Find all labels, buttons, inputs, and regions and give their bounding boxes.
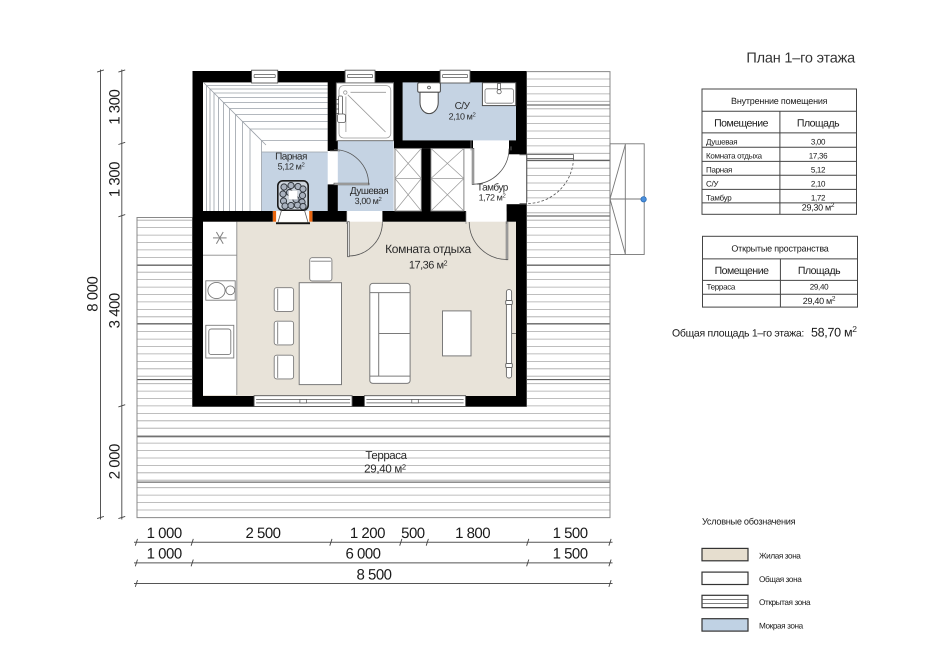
svg-text:3 400: 3 400 [107,293,124,328]
svg-text:1 300: 1 300 [107,162,124,197]
svg-text:5,12: 5,12 [811,166,826,175]
svg-text:17,36: 17,36 [809,152,828,161]
svg-text:8 500: 8 500 [356,567,391,584]
svg-text:Площадь: Площадь [797,118,840,130]
svg-text:Жилая зона: Жилая зона [759,551,801,560]
svg-text:Комната отдыха: Комната отдыха [706,152,763,161]
svg-text:Терраса: Терраса [365,450,407,462]
svg-text:Открытая зона: Открытая зона [759,598,811,607]
svg-text:Мокрая зона: Мокрая зона [759,622,804,631]
svg-text:1 000: 1 000 [147,546,182,563]
svg-text:3,00: 3,00 [811,138,826,147]
svg-text:Внутренние помещения: Внутренние помещения [731,96,828,106]
svg-text:Общая площадь 1–го этажа:58,70: Общая площадь 1–го этажа:58,70 м2 [672,324,857,340]
svg-text:Тамбур: Тамбур [706,194,732,203]
svg-text:Душевая: Душевая [706,138,737,147]
svg-text:2 000: 2 000 [107,444,124,479]
svg-text:2 500: 2 500 [245,525,280,542]
svg-text:Помещение: Помещение [714,118,768,130]
svg-text:500: 500 [401,525,425,542]
svg-text:Терраса: Терраса [707,282,736,291]
svg-text:8 000: 8 000 [85,277,102,312]
svg-text:План 1–го этажа: План 1–го этажа [746,51,856,67]
svg-text:29,30 м2: 29,30 м2 [802,202,835,213]
svg-text:С/У: С/У [706,180,719,189]
svg-text:Помещение: Помещение [715,265,769,277]
svg-text:1,72 м2: 1,72 м2 [479,193,506,203]
svg-text:Парная: Парная [706,166,732,175]
svg-text:1 500: 1 500 [553,546,588,563]
svg-text:Общая зона: Общая зона [759,575,802,584]
svg-text:5,12 м2: 5,12 м2 [278,161,305,171]
svg-text:2,10 м2: 2,10 м2 [449,111,476,121]
svg-text:1 200: 1 200 [350,525,385,542]
svg-text:Площадь: Площадь [798,265,841,277]
svg-text:1 300: 1 300 [107,90,124,125]
svg-text:Условные обозначения: Условные обозначения [702,517,796,527]
svg-text:Открытые пространства: Открытые пространства [731,243,828,253]
svg-text:Комната отдыха: Комната отдыха [385,242,471,256]
svg-text:1 000: 1 000 [147,525,182,542]
svg-text:29,40 м2: 29,40 м2 [803,295,836,306]
svg-text:1,72: 1,72 [811,194,826,203]
svg-text:2,10: 2,10 [811,180,826,189]
svg-text:6 000: 6 000 [345,546,380,563]
svg-text:29,40: 29,40 [810,282,829,291]
svg-text:1 500: 1 500 [553,525,588,542]
svg-text:29,40 м2: 29,40 м2 [364,463,406,476]
svg-text:17,36 м2: 17,36 м2 [409,258,448,271]
svg-text:1 800: 1 800 [455,525,490,542]
svg-text:3,00 м2: 3,00 м2 [355,196,382,206]
